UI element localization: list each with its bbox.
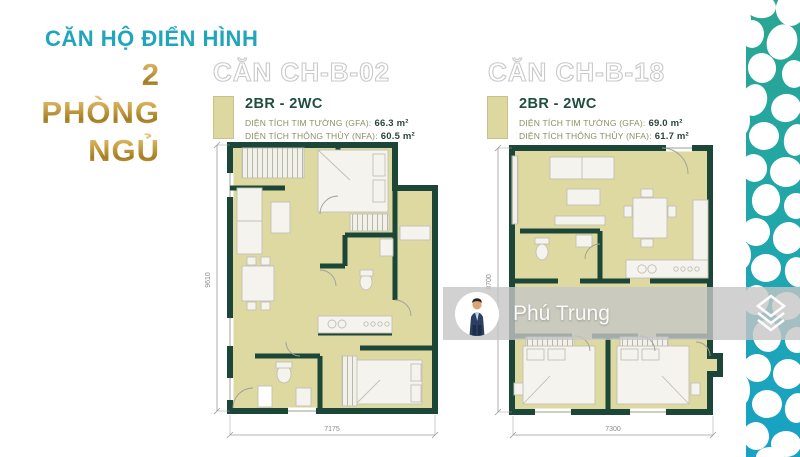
bedroom2-wardrobe (342, 356, 357, 406)
unit-b02-gfa-value: 66.3 m² (374, 118, 408, 129)
person-icon (455, 292, 499, 336)
bedroom-count-heading: 2 PHÒNG NGỦ (18, 56, 160, 170)
bedroom-word-2: NGỦ (18, 132, 160, 170)
floor-color-swatch (213, 96, 234, 139)
louver-window (512, 156, 518, 224)
unit-b02-name: CĂN CH-B-02 (213, 57, 390, 88)
dim-height-label: 9610 (205, 272, 212, 288)
desk (400, 226, 430, 240)
coffee-table (271, 202, 290, 233)
dim-width-label: 7175 (324, 426, 340, 433)
dining-table (633, 198, 667, 238)
floorplan-unit-b02: 9610 7175 (200, 140, 450, 445)
unit-b18-legend: 2BR - 2WC DIỆN TÍCH TIM TƯỜNG (GFA):69.0… (487, 96, 689, 143)
page-title: CĂN HỘ ĐIỂN HÌNH (45, 26, 258, 52)
dining-table (242, 266, 274, 301)
dim-width-label: 7300 (605, 426, 621, 433)
bedroom-word-1: PHÒNG (18, 94, 160, 132)
entry-closet (242, 148, 304, 178)
floor-color-swatch (487, 96, 508, 139)
agent-avatar (455, 292, 499, 336)
coffee-table (567, 189, 600, 205)
master-wardrobe (350, 214, 389, 231)
bath1-vanity (380, 239, 393, 256)
unit-b02-type: 2BR - 2WC (245, 96, 415, 112)
bath-vanity (576, 235, 592, 247)
watermark-name: Phú Trung (513, 302, 610, 326)
unit-b18-gfa-value: 69.0 m² (648, 118, 682, 129)
washer (296, 388, 311, 406)
bath2-shower (258, 386, 272, 407)
unit-b02-gfa-row: DIỆN TÍCH TIM TƯỜNG (GFA):66.3 m² (245, 117, 415, 130)
decorative-cell-pattern (742, 0, 800, 457)
bedroom-count-number: 2 (18, 56, 160, 94)
floorplan-brochure-page: CĂN HỘ ĐIỂN HÌNH 2 PHÒNG NGỦ CĂN CH-B-02… (0, 0, 800, 457)
watermark-badge: Phú Trung (443, 287, 800, 340)
bath-toilet (536, 244, 548, 260)
unit-b18-gfa-row: DIỆN TÍCH TIM TƯỜNG (GFA):69.0 m² (519, 117, 689, 130)
tv-console (555, 216, 605, 225)
brand-diamond-logo-icon (753, 294, 789, 334)
unit-b02-legend: 2BR - 2WC DIỆN TÍCH TIM TƯỜNG (GFA):66.3… (213, 96, 415, 143)
unit-b18-name: CĂN CH-B-18 (488, 57, 665, 88)
unit-b18-type: 2BR - 2WC (519, 96, 689, 112)
